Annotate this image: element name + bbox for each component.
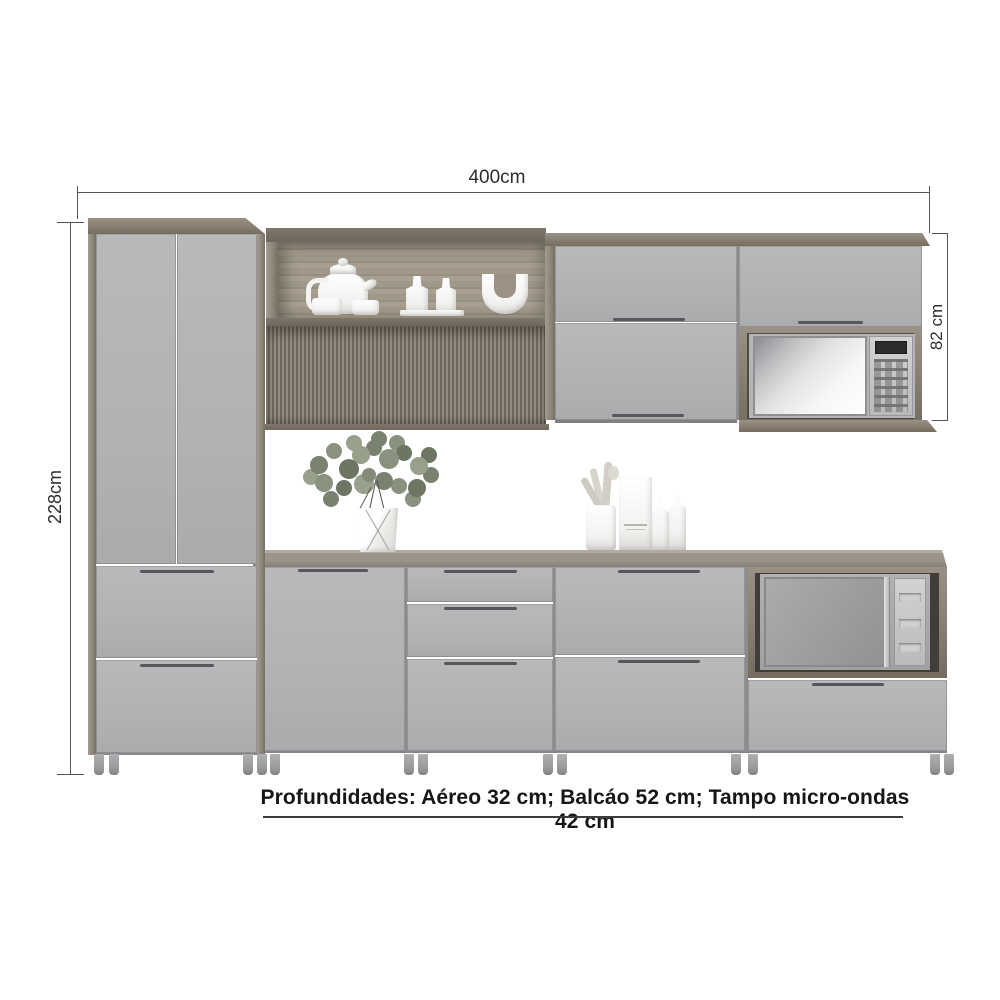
lower-microwave-handle: [884, 577, 889, 667]
base-drawer-handle-2: [444, 607, 517, 610]
cabinet-foot: [418, 754, 428, 775]
shelf-cup-2: [352, 300, 379, 315]
tall-cabinet: [88, 218, 265, 755]
hutch-left-frame: [266, 242, 278, 326]
dimension-upper-height-tick-top: [932, 233, 948, 234]
cabinet-foot: [543, 754, 553, 775]
base-drawer-handle-1: [444, 570, 517, 573]
counter-bottle-1: [652, 497, 669, 550]
lower-microwave-knob-2: [899, 619, 921, 628]
lower-microwave-knob-1: [899, 593, 921, 602]
flower-foliage: [362, 468, 376, 482]
base-cabinet-bottom-edge: [256, 751, 947, 753]
base-door-cabinet: [258, 567, 405, 751]
utensil-holder: [586, 505, 616, 550]
cabinet-foot: [748, 754, 758, 775]
cabinet-foot: [243, 754, 253, 775]
wall-cabinet-handle-3: [798, 321, 863, 324]
dimension-height-tick-top: [57, 222, 84, 223]
base-drawer-small-2: [407, 604, 553, 657]
shelf-cup-1: [312, 298, 342, 315]
base-drawer-wide-1: [555, 567, 745, 655]
tall-cabinet-door-left: [96, 234, 176, 564]
base-drawer-handle-3: [444, 662, 517, 665]
base-cabinets: [256, 567, 947, 753]
tall-cabinet-drawer-handle-2: [140, 664, 214, 667]
countertop: [253, 550, 947, 567]
wall-cabinet-flip-door-top-left: [555, 246, 737, 322]
tall-cabinet-door-right: [177, 234, 257, 564]
wall-cabinet-flip-door-bottom-left: [555, 323, 737, 420]
upper-microwave-display: [875, 341, 907, 354]
tall-cabinet-drawer-2: [96, 660, 257, 753]
wall-cabinet-handle-1: [613, 318, 685, 321]
lower-microwave-knob-3: [899, 643, 921, 652]
dimension-height-label: 228cm: [45, 457, 65, 537]
counter-bottle-2: [669, 491, 686, 550]
spoon-head: [608, 466, 619, 480]
depth-note-text: Profundidades: Aéreo 32 cm; Balcáo 52 cm…: [250, 786, 920, 834]
u-shaped-vase-gap: [494, 274, 516, 298]
dimension-height-line: [70, 222, 71, 775]
dimension-width-tick-right: [929, 186, 930, 233]
flower-stem: [376, 480, 384, 509]
kitchen-cabinet-product-diagram: 400cm 228cm 82 cm: [0, 0, 1000, 1000]
wall-cabinet-top-strip: [545, 233, 930, 246]
lower-microwave-unit-drawer-handle: [812, 683, 884, 686]
base-door-handle: [298, 569, 368, 572]
lower-microwave-unit-drawer: [748, 680, 947, 751]
base-drawer-wide-handle-2: [618, 660, 700, 663]
upper-wall-cabinets: [545, 233, 930, 432]
tall-cabinet-bottom-edge: [96, 753, 257, 755]
shelf-tray: [400, 310, 464, 316]
hutch-bottom-board: [263, 424, 549, 430]
teapot-knob: [338, 258, 348, 266]
hutch-shelf-board: [266, 318, 546, 326]
dimension-upper-height-tick-bottom: [932, 420, 948, 421]
cabinet-foot: [731, 754, 741, 775]
cabinet-foot: [930, 754, 940, 775]
package-box-label-line: [626, 529, 645, 530]
upper-microwave-mirror-door: [753, 336, 867, 416]
lower-microwave-door: [764, 577, 890, 667]
base-drawer-wide-2: [555, 657, 745, 751]
cabinet-foot: [257, 754, 267, 775]
package-box-label: [624, 524, 647, 526]
tall-cabinet-drawer-handle-1: [140, 570, 214, 573]
cabinet-foot: [944, 754, 954, 775]
cabinet-foot: [270, 754, 280, 775]
dimension-width-tick-left: [77, 186, 78, 219]
dimension-width-line: [77, 192, 930, 193]
wall-cabinet-left-side: [545, 246, 555, 420]
dimension-width-label: 400cm: [447, 167, 547, 189]
dimension-upper-height-line: [947, 233, 948, 421]
cabinet-foot: [404, 754, 414, 775]
cabinet-foot: [109, 754, 119, 775]
wall-cabinet-handle-2: [612, 414, 684, 417]
base-drawer-wide-handle-1: [618, 570, 700, 573]
tall-cabinet-drawer-1: [96, 566, 257, 658]
cabinet-foot: [557, 754, 567, 775]
depth-note-underline: [263, 816, 903, 818]
base-drawer-small-3: [407, 659, 553, 751]
wall-cabinet-flip-door-right: [739, 246, 922, 327]
hutch-cornice: [266, 228, 546, 242]
upper-hutch: [266, 228, 546, 430]
hutch-fluted-sliding-door: [266, 326, 546, 424]
package-box: [619, 477, 652, 550]
flower-vase-facets: [363, 510, 393, 550]
upper-microwave-niche-bottom-board: [739, 420, 937, 432]
tall-cabinet-top: [88, 218, 265, 234]
dimension-upper-height-label: 82 cm: [927, 287, 947, 367]
cabinet-foot: [94, 754, 104, 775]
tall-cabinet-right-side: [257, 234, 265, 755]
upper-microwave-keypad: [874, 359, 908, 412]
wall-cabinet-bottom-edge: [555, 420, 737, 423]
dimension-height-tick-bottom: [57, 774, 84, 775]
tall-cabinet-left-side: [88, 234, 96, 755]
